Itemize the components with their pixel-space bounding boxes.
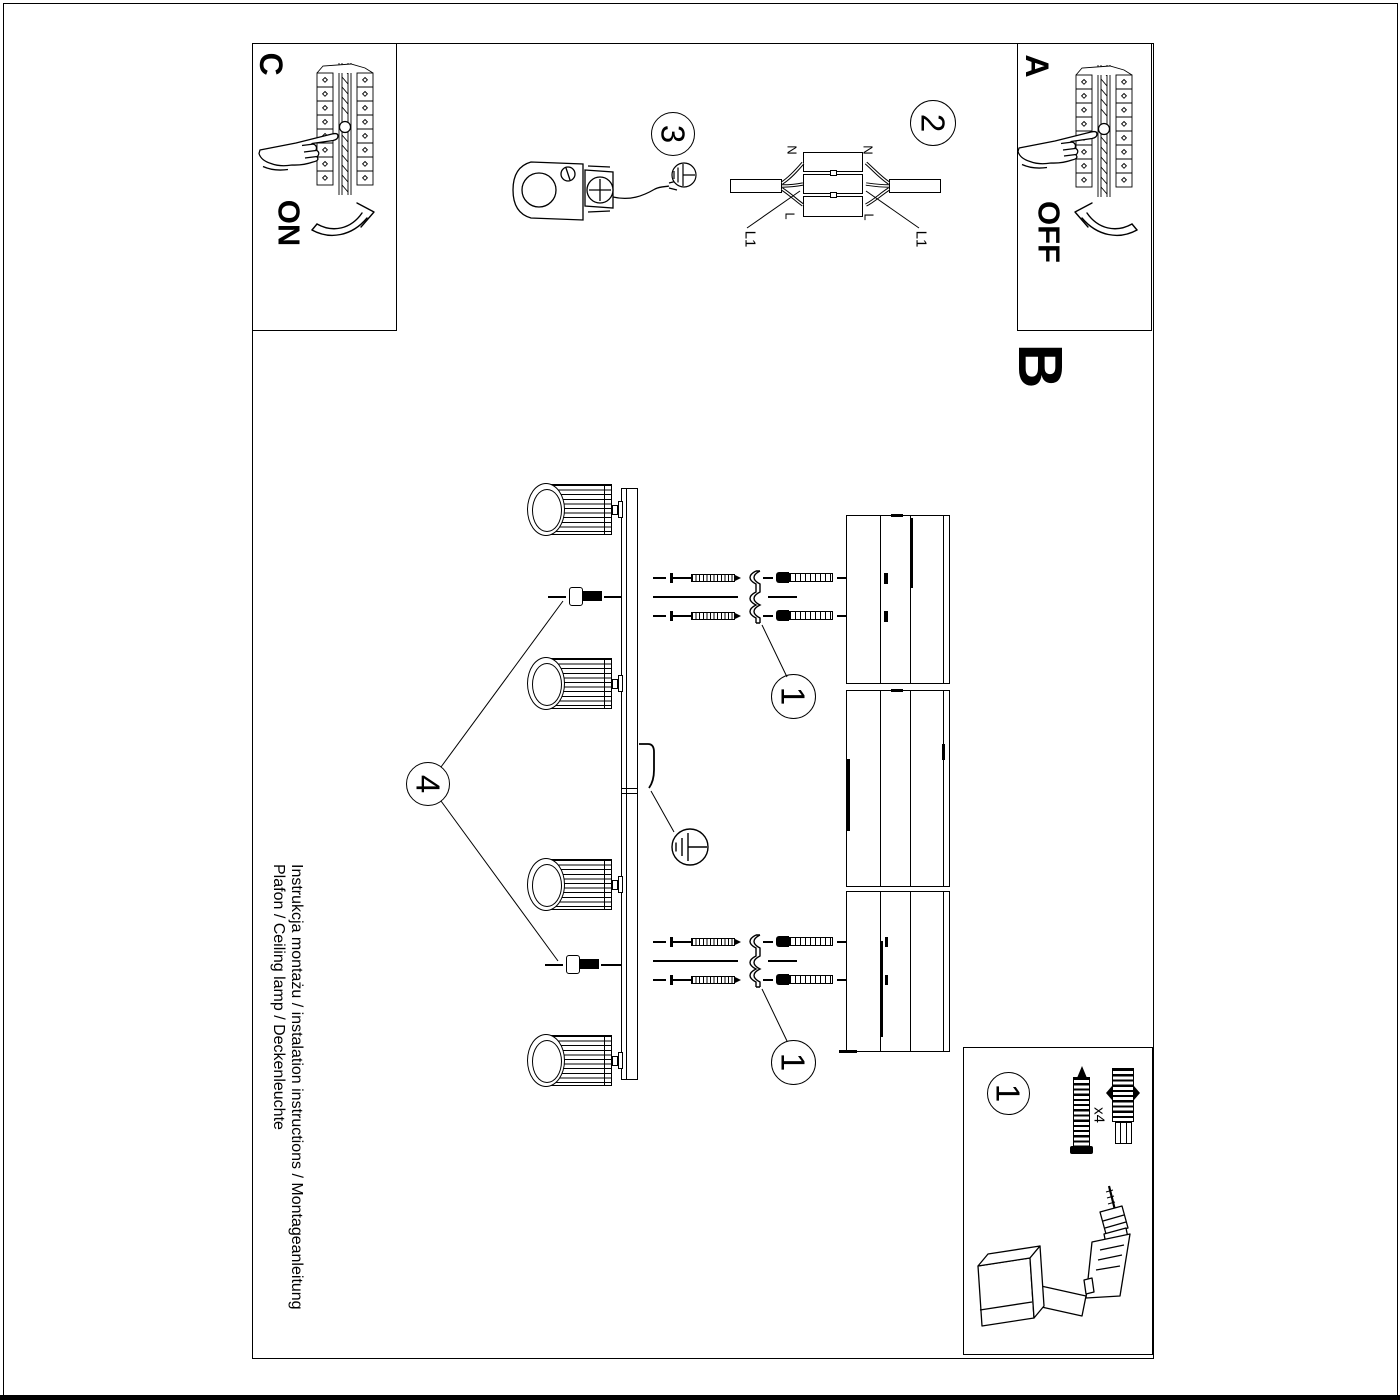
earth-cable-hook bbox=[639, 744, 654, 788]
cable-clamp-illustration bbox=[513, 162, 677, 220]
earth-symbol-small-icon bbox=[672, 163, 696, 187]
instruction-sheet: C ON A OFF B 3 2 4 1 1 N N L L L1 L1 bbox=[0, 0, 1400, 1400]
switch-off-arrow-icon bbox=[1075, 203, 1137, 235]
drill-illustration bbox=[978, 1186, 1130, 1326]
earth-symbol-large-icon bbox=[672, 829, 708, 865]
fuse-panel-a-illustration bbox=[1076, 65, 1132, 197]
callout-leader-lines bbox=[441, 601, 787, 1041]
linework-layer bbox=[0, 0, 1400, 1400]
mounting-strap-top-icon bbox=[750, 571, 760, 623]
mounting-strap-bottom-icon bbox=[750, 935, 760, 987]
fuse-panel-c-illustration bbox=[317, 63, 373, 195]
terminal-wires bbox=[747, 163, 919, 228]
switch-on-arrow-icon bbox=[312, 203, 374, 235]
